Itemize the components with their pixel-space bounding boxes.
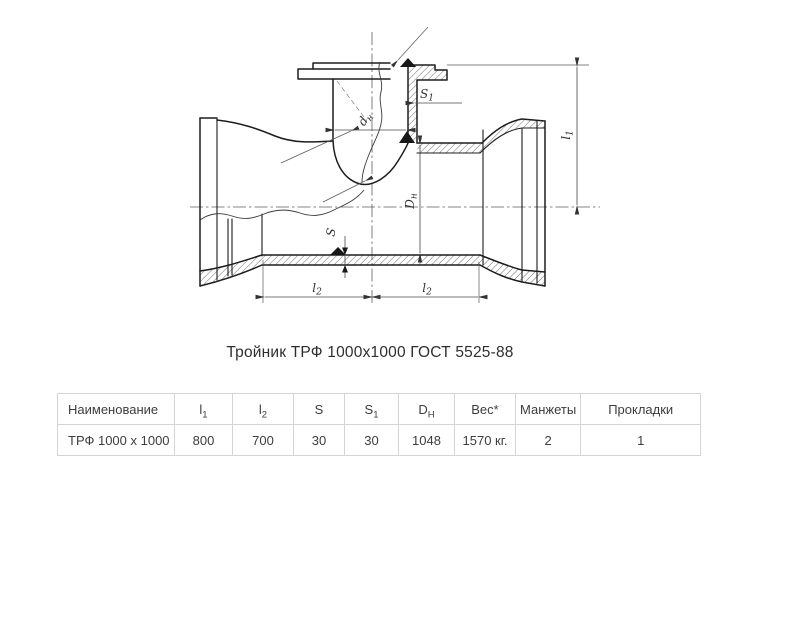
cell-cuffs: 2 (516, 425, 581, 456)
label-l1: l1 (559, 130, 576, 140)
label-l2-right: l2 (422, 281, 432, 298)
spec-table-header-row: Наименование l1 l2 S S1 DH Вес* Манжеты … (58, 394, 701, 425)
col-header-s: S (294, 394, 345, 425)
spec-table: Наименование l1 l2 S S1 DH Вес* Манжеты … (57, 393, 701, 456)
page: dн S1 Dн S l1 l2 l2 Тройник ТРФ 1000х100… (0, 0, 800, 623)
flange-branch-wall-section (408, 65, 447, 143)
cell-name: ТРФ 1000 х 1000 (58, 425, 175, 456)
label-dn: dн (355, 109, 376, 130)
cell-s1: 30 (345, 425, 399, 456)
col-header-l1: l1 (175, 394, 233, 425)
fitting-outline (200, 63, 545, 286)
col-header-cuffs: Манжеты (516, 394, 581, 425)
label-l2-left: l2 (312, 281, 322, 298)
cell-l1: 800 (175, 425, 233, 456)
col-header-gaskets: Прокладки (581, 394, 701, 425)
tee-technical-drawing: dн S1 Dн S l1 l2 l2 (0, 0, 800, 623)
dimension-labels: dн S1 Dн S l1 l2 l2 (312, 87, 575, 298)
section-hatching (200, 65, 545, 286)
spec-table-data-row: ТРФ 1000 х 1000 800 700 30 30 1048 1570 … (58, 425, 701, 456)
page-title: Тройник ТРФ 1000х1000 ГОСТ 5525-88 (0, 344, 740, 362)
col-header-l2: l2 (233, 394, 294, 425)
col-header-s1: S1 (345, 394, 399, 425)
leader-lines (281, 27, 428, 202)
run-bottom-wall-section (262, 255, 480, 265)
cell-l2: 700 (233, 425, 294, 456)
left-sole-section (200, 255, 262, 286)
cell-s: 30 (294, 425, 345, 456)
label-s1: S1 (420, 87, 434, 104)
label-s: S (323, 227, 338, 238)
col-header-weight: Вес* (455, 394, 516, 425)
cell-dn: 1048 (399, 425, 455, 456)
col-header-name: Наименование (58, 394, 175, 425)
cell-gaskets: 1 (581, 425, 701, 456)
cell-weight: 1570 кг. (455, 425, 516, 456)
drawing-area: dн S1 Dн S l1 l2 l2 (0, 0, 800, 623)
col-header-dn: DH (399, 394, 455, 425)
run-top-wall-section (417, 119, 545, 153)
weld-marks (330, 58, 416, 255)
